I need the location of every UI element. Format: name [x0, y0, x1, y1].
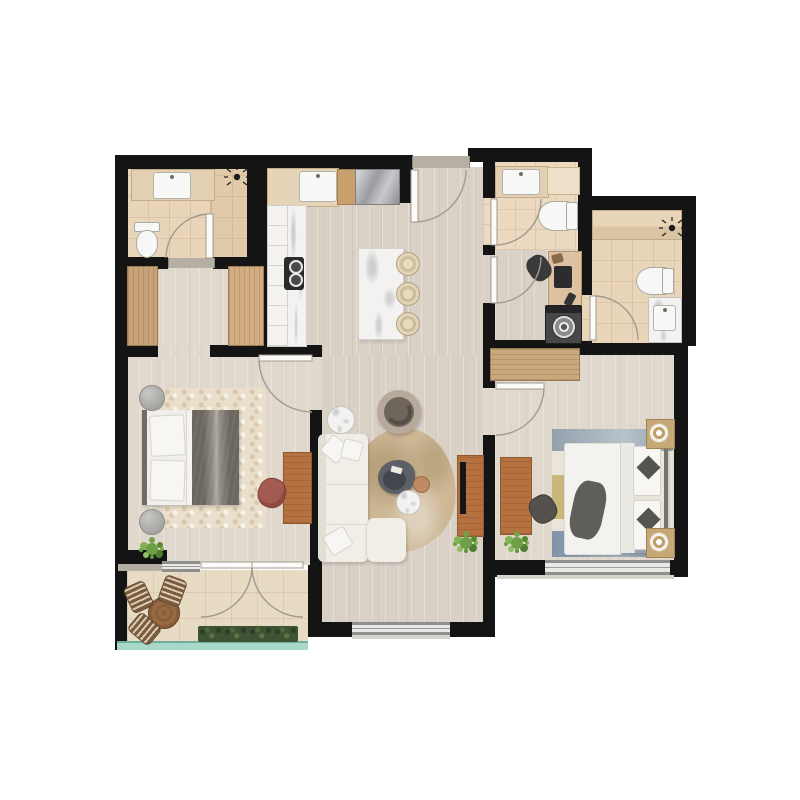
window-sill — [352, 635, 450, 639]
entrance-threshold — [412, 156, 470, 168]
wall-hall-east-4 — [483, 435, 495, 637]
closet-wardrobe-right — [228, 266, 264, 346]
pillow — [149, 414, 186, 457]
pillow — [149, 459, 185, 501]
wall-bath3-top — [590, 196, 696, 210]
bedroom-bed — [142, 410, 239, 505]
master-bedroom-window — [545, 560, 670, 575]
refrigerator — [355, 169, 400, 205]
wall-balcony-left — [115, 565, 127, 650]
bedroom-window — [162, 561, 200, 572]
duvet-gray — [192, 410, 239, 505]
sofa-chaise — [366, 518, 406, 562]
sofa — [318, 434, 368, 562]
wall-outer-left — [115, 155, 128, 565]
nightstand-lamp — [649, 532, 669, 552]
plant — [513, 539, 521, 547]
bathroom-2-shelf — [547, 167, 580, 195]
master-desk — [500, 457, 532, 535]
wall-living-bottom-right — [450, 622, 495, 637]
bathroom-2-toilet-tank — [566, 202, 578, 230]
floor-plan — [0, 0, 800, 800]
bar-stool — [396, 312, 420, 336]
doorway-gap — [483, 198, 495, 245]
round-marble-table — [396, 490, 421, 515]
nightstand-round — [139, 385, 165, 411]
bathroom-2-sink — [502, 169, 540, 195]
bar-stool — [396, 282, 420, 306]
wall-bath1-kitchen — [247, 167, 267, 269]
wall-bath3-right — [682, 196, 696, 346]
wall-bedroom-top-left — [117, 345, 158, 357]
sofa-pillow — [340, 438, 364, 462]
planter-hedge — [198, 626, 298, 642]
closet-wardrobe-left — [127, 266, 158, 346]
plant — [462, 539, 470, 547]
plant — [148, 545, 156, 553]
bedroom-desk — [283, 452, 312, 524]
bathroom-3-bench — [592, 210, 682, 240]
nightstand-round — [139, 509, 165, 535]
kitchen-sink — [299, 171, 337, 202]
laptop — [554, 266, 572, 288]
round-armchair — [377, 390, 421, 434]
wall-hall-east-2 — [483, 245, 495, 255]
window-sill — [497, 575, 674, 579]
washing-machine — [545, 305, 582, 344]
cutting-board — [337, 169, 357, 205]
doorway-gap — [158, 345, 210, 357]
side-table — [327, 406, 355, 434]
doorway-gap — [483, 255, 495, 303]
master-wardrobe — [490, 348, 580, 381]
bathroom-3-toilet-tank — [662, 268, 674, 294]
balcony-ledge — [118, 564, 168, 571]
bathroom-1-threshold — [168, 258, 215, 268]
wall-top-right — [468, 148, 590, 162]
cooktop — [284, 257, 304, 290]
wall-hall-east-1 — [483, 162, 495, 198]
doorway-gap — [310, 357, 322, 410]
nightstand-lamp — [649, 423, 669, 443]
living-room-window — [352, 622, 450, 635]
pouf — [413, 476, 430, 493]
bar-stool — [396, 252, 420, 276]
wall-living-bottom-left — [320, 622, 352, 637]
doorway-gap — [483, 388, 495, 435]
bathroom-1-sink — [153, 172, 191, 199]
wall-bath3-bottom — [590, 343, 682, 355]
tv — [460, 462, 466, 514]
wall-master-right — [674, 346, 688, 577]
bathroom-3-sink — [653, 305, 676, 331]
shower-zone — [210, 168, 251, 260]
bathroom-1-toilet-bowl — [136, 230, 158, 258]
wall-stub-fridge — [398, 155, 412, 203]
sofa-pillow — [322, 525, 354, 556]
coffee-table — [378, 460, 415, 494]
wall-bedroom-bottom — [115, 550, 167, 565]
